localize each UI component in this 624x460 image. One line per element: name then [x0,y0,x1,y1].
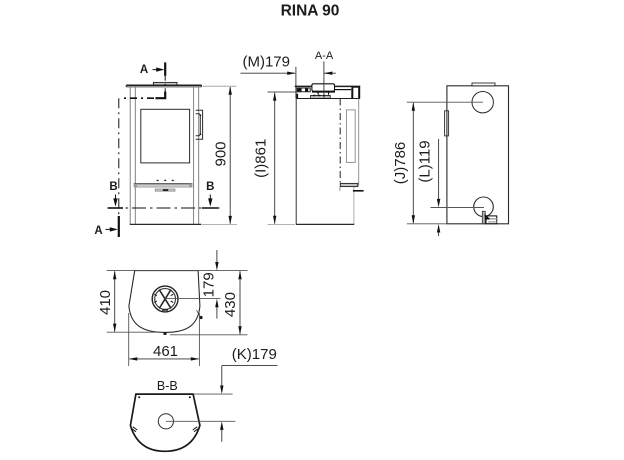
svg-text:430: 430 [222,292,239,317]
svg-text:(L)119: (L)119 [417,140,434,182]
svg-text:A: A [140,64,148,76]
svg-text:(I)861: (I)861 [252,139,269,178]
svg-text:A-A: A-A [315,50,334,62]
svg-text:A: A [94,225,102,237]
svg-text:(K)179: (K)179 [232,346,277,363]
svg-text:(J)786: (J)786 [392,142,409,185]
svg-text:900: 900 [212,141,229,166]
svg-text:B-B: B-B [157,379,178,393]
svg-text:RINA 90: RINA 90 [281,3,340,20]
svg-text:B: B [206,181,214,193]
svg-text:(M)179: (M)179 [242,53,290,70]
svg-text:179: 179 [201,272,218,297]
svg-text:410: 410 [97,290,114,315]
svg-text:B: B [109,181,117,193]
svg-text:461: 461 [153,343,178,360]
